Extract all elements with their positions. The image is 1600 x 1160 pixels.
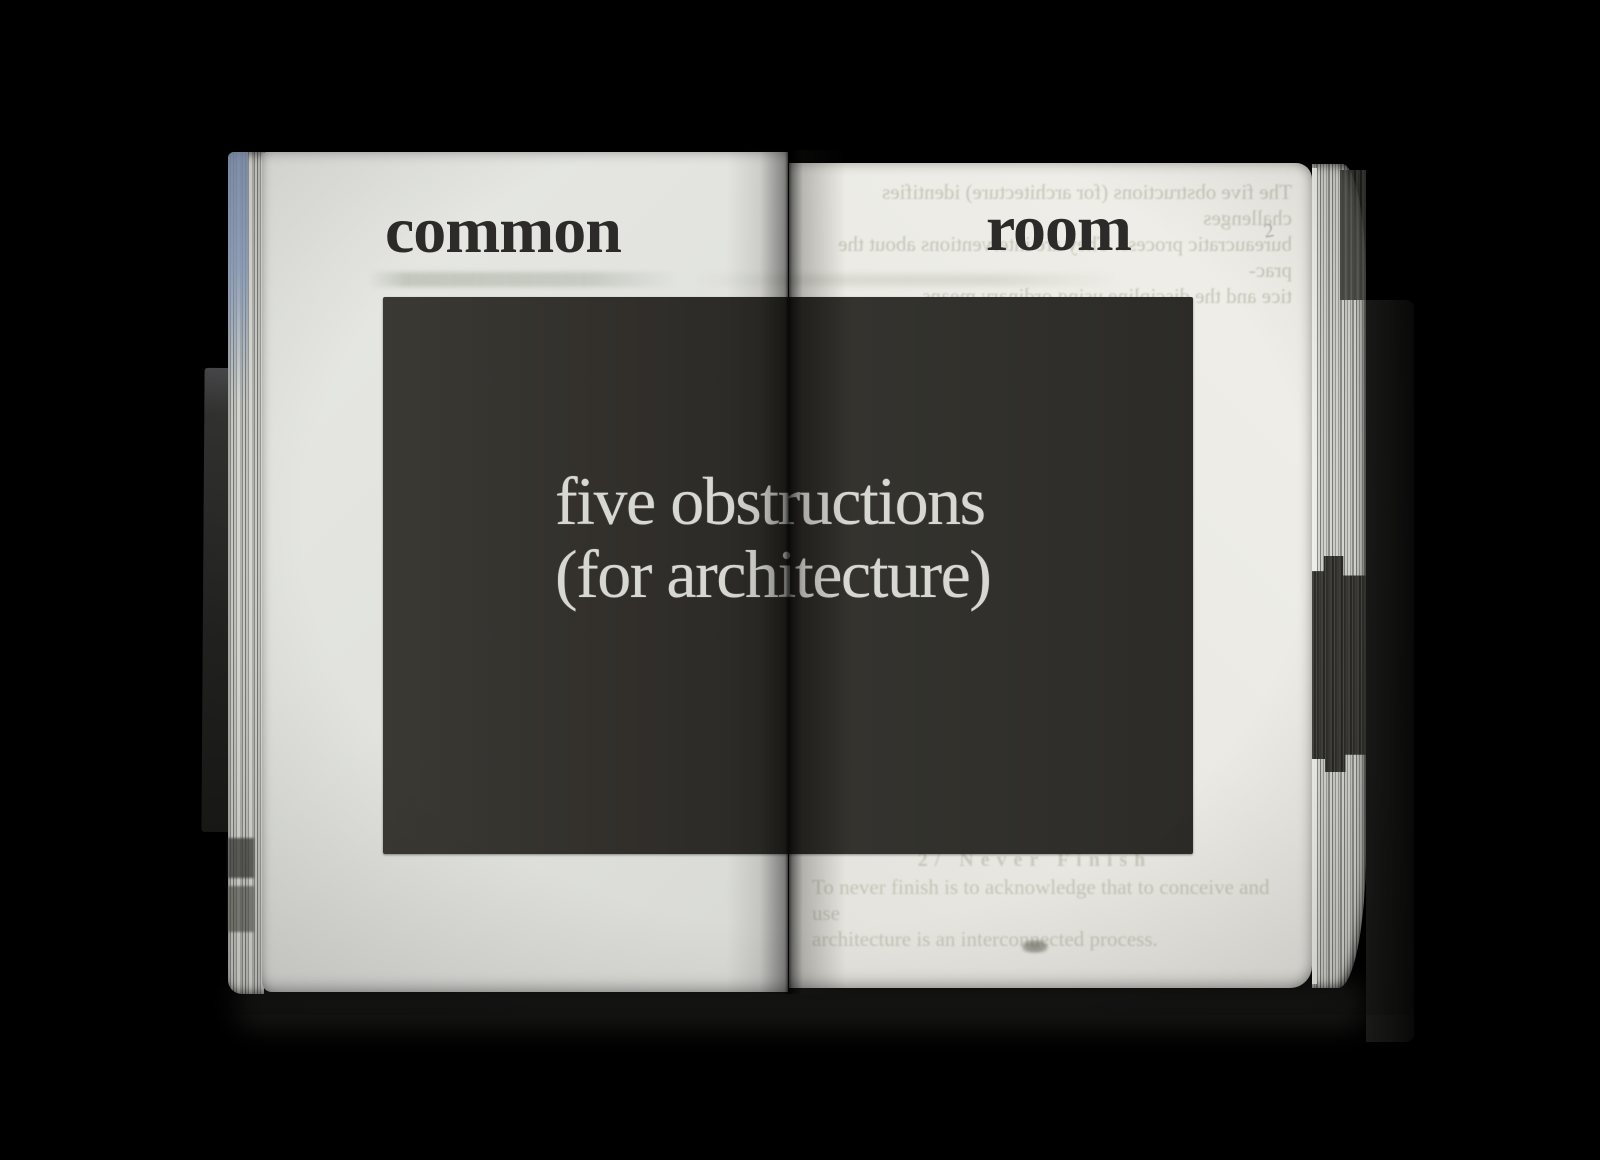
photo-of-open-book: The five obstructions (for architecture)… — [0, 0, 1600, 1160]
left-page-header: common — [240, 198, 766, 264]
plate-title-line-1: five obstructions — [555, 465, 1175, 538]
page-number-showthrough — [1022, 940, 1048, 953]
dark-page-edges-top — [1340, 170, 1366, 300]
showthrough-line: To never finish is to acknowledge that t… — [812, 874, 1272, 926]
page-edge-print-mark — [228, 838, 254, 878]
book-cover-edge-right — [1366, 300, 1414, 1042]
plate-title: five obstructions (for architecture) — [555, 465, 1175, 611]
plate-title-line-2: (for architecture) — [555, 538, 1175, 611]
right-page-header: room — [797, 196, 1320, 262]
showthrough-smudge — [368, 272, 678, 287]
page-edge-print-mark — [228, 886, 254, 932]
dark-title-plate: five obstructions (for architecture) — [383, 297, 1193, 854]
dark-page-edges-band — [1312, 556, 1366, 772]
blue-page-edge-accent — [228, 152, 248, 402]
